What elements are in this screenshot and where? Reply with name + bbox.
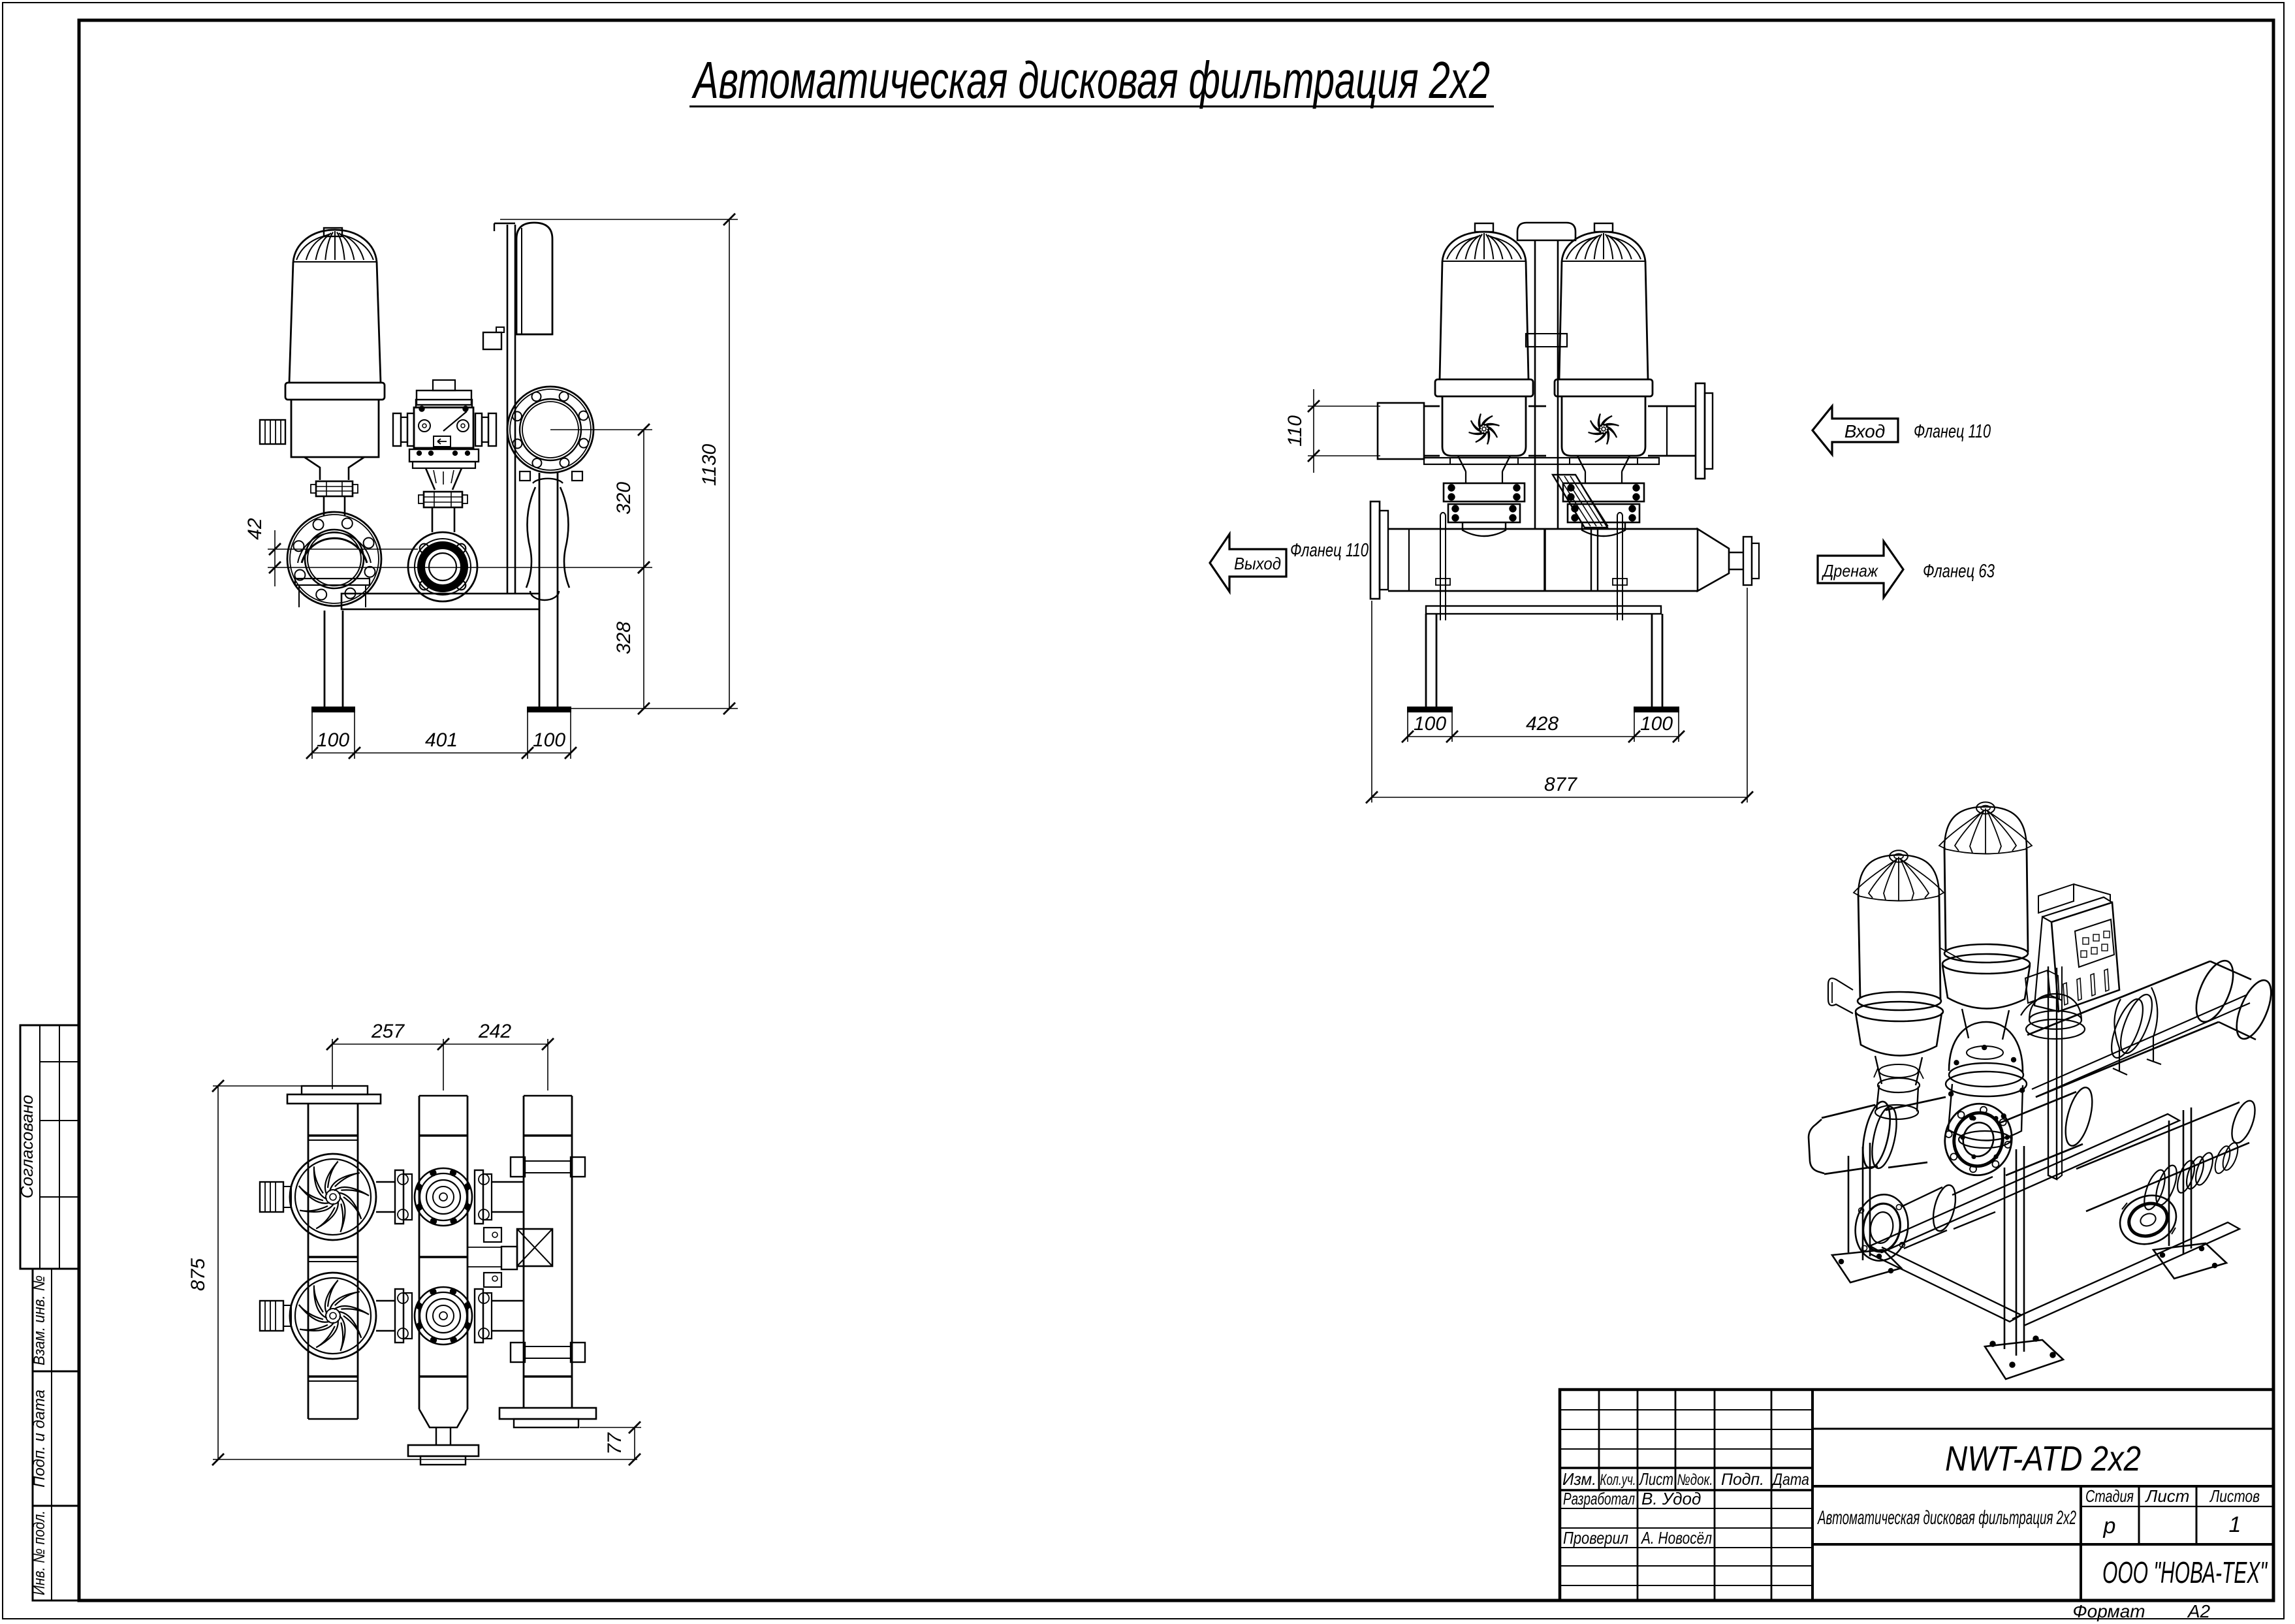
svg-text:Стадия: Стадия (2085, 1486, 2134, 1506)
svg-text:Вход: Вход (1844, 421, 1885, 441)
svg-text:Лист: Лист (2145, 1486, 2190, 1506)
svg-text:ООО "НОВА-ТЕХ": ООО "НОВА-ТЕХ" (2102, 1555, 2268, 1589)
svg-text:875: 875 (187, 1258, 209, 1291)
svg-text:Фланец 63: Фланец 63 (1923, 561, 1995, 582)
svg-text:401: 401 (425, 729, 458, 751)
svg-text:100: 100 (1414, 713, 1446, 735)
svg-text:Изм.: Изм. (1562, 1469, 1596, 1489)
svg-text:Подп.: Подп. (1721, 1471, 1764, 1489)
svg-text:А2: А2 (2187, 1601, 2211, 1621)
svg-text:Кол.уч.: Кол.уч. (1600, 1471, 1636, 1489)
svg-text:Подп. и дата: Подп. и дата (31, 1390, 48, 1488)
svg-text:№док.: №док. (1677, 1471, 1713, 1489)
svg-text:100: 100 (317, 729, 349, 751)
svg-text:р: р (2103, 1514, 2116, 1538)
svg-text:Дренаж: Дренаж (1821, 561, 1878, 581)
svg-text:Выход: Выход (1234, 554, 1281, 573)
svg-text:Фланец 110: Фланец 110 (1290, 540, 1369, 561)
svg-text:Формат: Формат (2072, 1601, 2145, 1621)
svg-text:110: 110 (1284, 415, 1306, 447)
svg-text:Проверил: Проверил (1563, 1528, 1628, 1548)
svg-text:Фланец 110: Фланец 110 (1914, 421, 1991, 442)
svg-text:Взам. инв. №: Взам. инв. № (31, 1275, 48, 1365)
svg-text:1130: 1130 (699, 443, 720, 486)
svg-text:242: 242 (478, 1021, 511, 1042)
svg-text:NWT-ATD 2x2: NWT-ATD 2x2 (1945, 1439, 2141, 1478)
svg-text:428: 428 (1526, 713, 1559, 735)
svg-text:Автоматическая дисковая фильтр: Автоматическая дисковая фильтрация 2х2 (691, 51, 1490, 109)
svg-text:328: 328 (613, 622, 635, 654)
svg-text:Лист: Лист (1638, 1469, 1673, 1489)
svg-text:1: 1 (2229, 1512, 2241, 1537)
svg-text:77: 77 (604, 1432, 625, 1455)
svg-text:100: 100 (1640, 713, 1673, 735)
svg-text:В. Удод: В. Удод (1641, 1489, 1701, 1508)
svg-text:Автоматическая дисковая фильтр: Автоматическая дисковая фильтрация 2x2 (1817, 1507, 2076, 1529)
svg-text:Дата: Дата (1771, 1471, 1809, 1489)
svg-text:Инв. № подл.: Инв. № подл. (31, 1510, 48, 1595)
svg-text:42: 42 (244, 518, 266, 540)
svg-text:А. Новосёл: А. Новосёл (1640, 1528, 1712, 1548)
svg-text:100: 100 (533, 729, 565, 751)
svg-text:320: 320 (613, 482, 635, 515)
svg-text:Листов: Листов (2209, 1486, 2260, 1506)
svg-text:257: 257 (371, 1021, 405, 1042)
svg-text:Согласовано: Согласовано (17, 1095, 37, 1199)
svg-text:Разработал: Разработал (1563, 1489, 1635, 1508)
svg-text:877: 877 (1544, 774, 1577, 795)
